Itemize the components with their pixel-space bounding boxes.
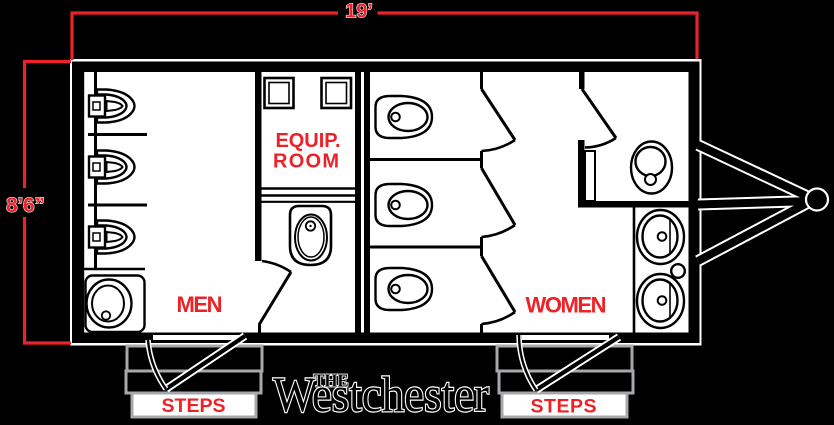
svg-text:EQUIP.: EQUIP. [276,130,341,152]
svg-text:THE: THE [314,371,349,391]
svg-text:MEN: MEN [177,292,223,317]
svg-text:Westchester: Westchester [273,366,489,422]
svg-text:ROOM: ROOM [273,151,339,173]
svg-text:STEPS: STEPS [531,396,597,418]
svg-text:STEPS: STEPS [162,395,226,417]
svg-text:8’6”: 8’6” [6,194,45,217]
svg-text:19’: 19’ [345,1,373,23]
svg-text:WOMEN: WOMEN [526,293,607,318]
